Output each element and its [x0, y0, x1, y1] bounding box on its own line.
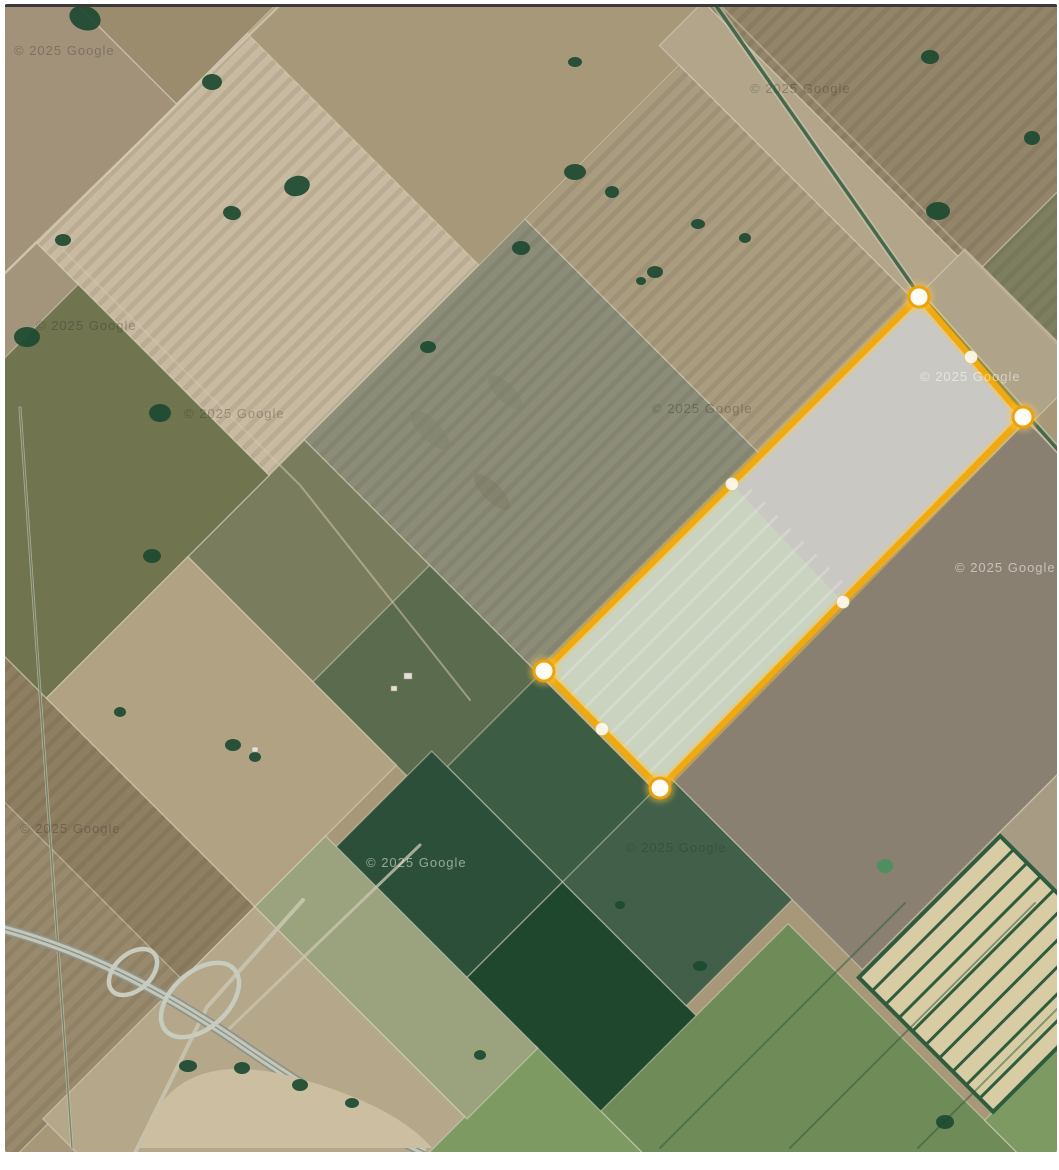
google-watermark: © 2025 Google [184, 406, 285, 421]
tree-clump [143, 549, 161, 563]
field-grid [5, 4, 1057, 1152]
farmstead [391, 686, 397, 691]
tree-clump [636, 277, 646, 285]
tree-clump [512, 241, 530, 255]
google-watermark: © 2025 Google [366, 855, 467, 870]
tree-clump [202, 74, 222, 90]
tree-clump [474, 1050, 486, 1060]
google-watermark: © 2025 Google [14, 43, 115, 58]
map-frame: © 2025 Google© 2025 Google© 2025 Google©… [5, 4, 1057, 1152]
tree-clump [292, 1079, 308, 1091]
tree-clump [605, 186, 619, 198]
tree-clump [647, 266, 663, 278]
tree-clump [114, 707, 126, 717]
tree-clump [249, 752, 261, 762]
polygon-midpoint-handle[interactable] [965, 351, 978, 364]
google-watermark: © 2025 Google [750, 81, 851, 96]
google-watermark: © 2025 Google [20, 821, 121, 836]
polygon-vertex-handle[interactable] [534, 661, 554, 681]
tree-clump [179, 1060, 197, 1072]
tree-clump [691, 219, 705, 229]
tree-clump [1024, 131, 1040, 145]
tree-clump [739, 233, 751, 243]
tree-clump [55, 234, 71, 246]
google-watermark: © 2025 Google [955, 560, 1056, 575]
polygon-midpoint-handle[interactable] [596, 723, 609, 736]
tree-clump [345, 1098, 359, 1108]
polygon-vertex-handle[interactable] [1013, 407, 1033, 427]
grass-patch [877, 859, 893, 873]
tree-clump [234, 1062, 250, 1074]
tree-clump [926, 202, 950, 220]
tree-clump [149, 404, 171, 422]
google-watermark: © 2025 Google [36, 318, 137, 333]
tree-clump [225, 739, 241, 751]
polygon-vertex-handle[interactable] [650, 778, 670, 798]
tree-clump [564, 164, 586, 180]
tree-clump [693, 961, 707, 971]
google-watermark: © 2025 Google [652, 401, 753, 416]
polygon-midpoint-handle[interactable] [837, 596, 850, 609]
polygon-midpoint-handle[interactable] [726, 478, 739, 491]
frame-top-border [5, 4, 1057, 7]
tree-clump [921, 50, 939, 64]
google-watermark: © 2025 Google [920, 369, 1021, 384]
tree-clump [615, 901, 625, 909]
polygon-vertex-handle[interactable] [909, 287, 929, 307]
tree-clump [568, 57, 582, 67]
google-watermark: © 2025 Google [626, 840, 727, 855]
farmstead [404, 673, 412, 679]
tree-clump [936, 1115, 954, 1129]
tree-clump [420, 341, 436, 353]
satellite-map-canvas[interactable]: © 2025 Google© 2025 Google© 2025 Google©… [5, 4, 1057, 1152]
farmstead [252, 747, 258, 752]
